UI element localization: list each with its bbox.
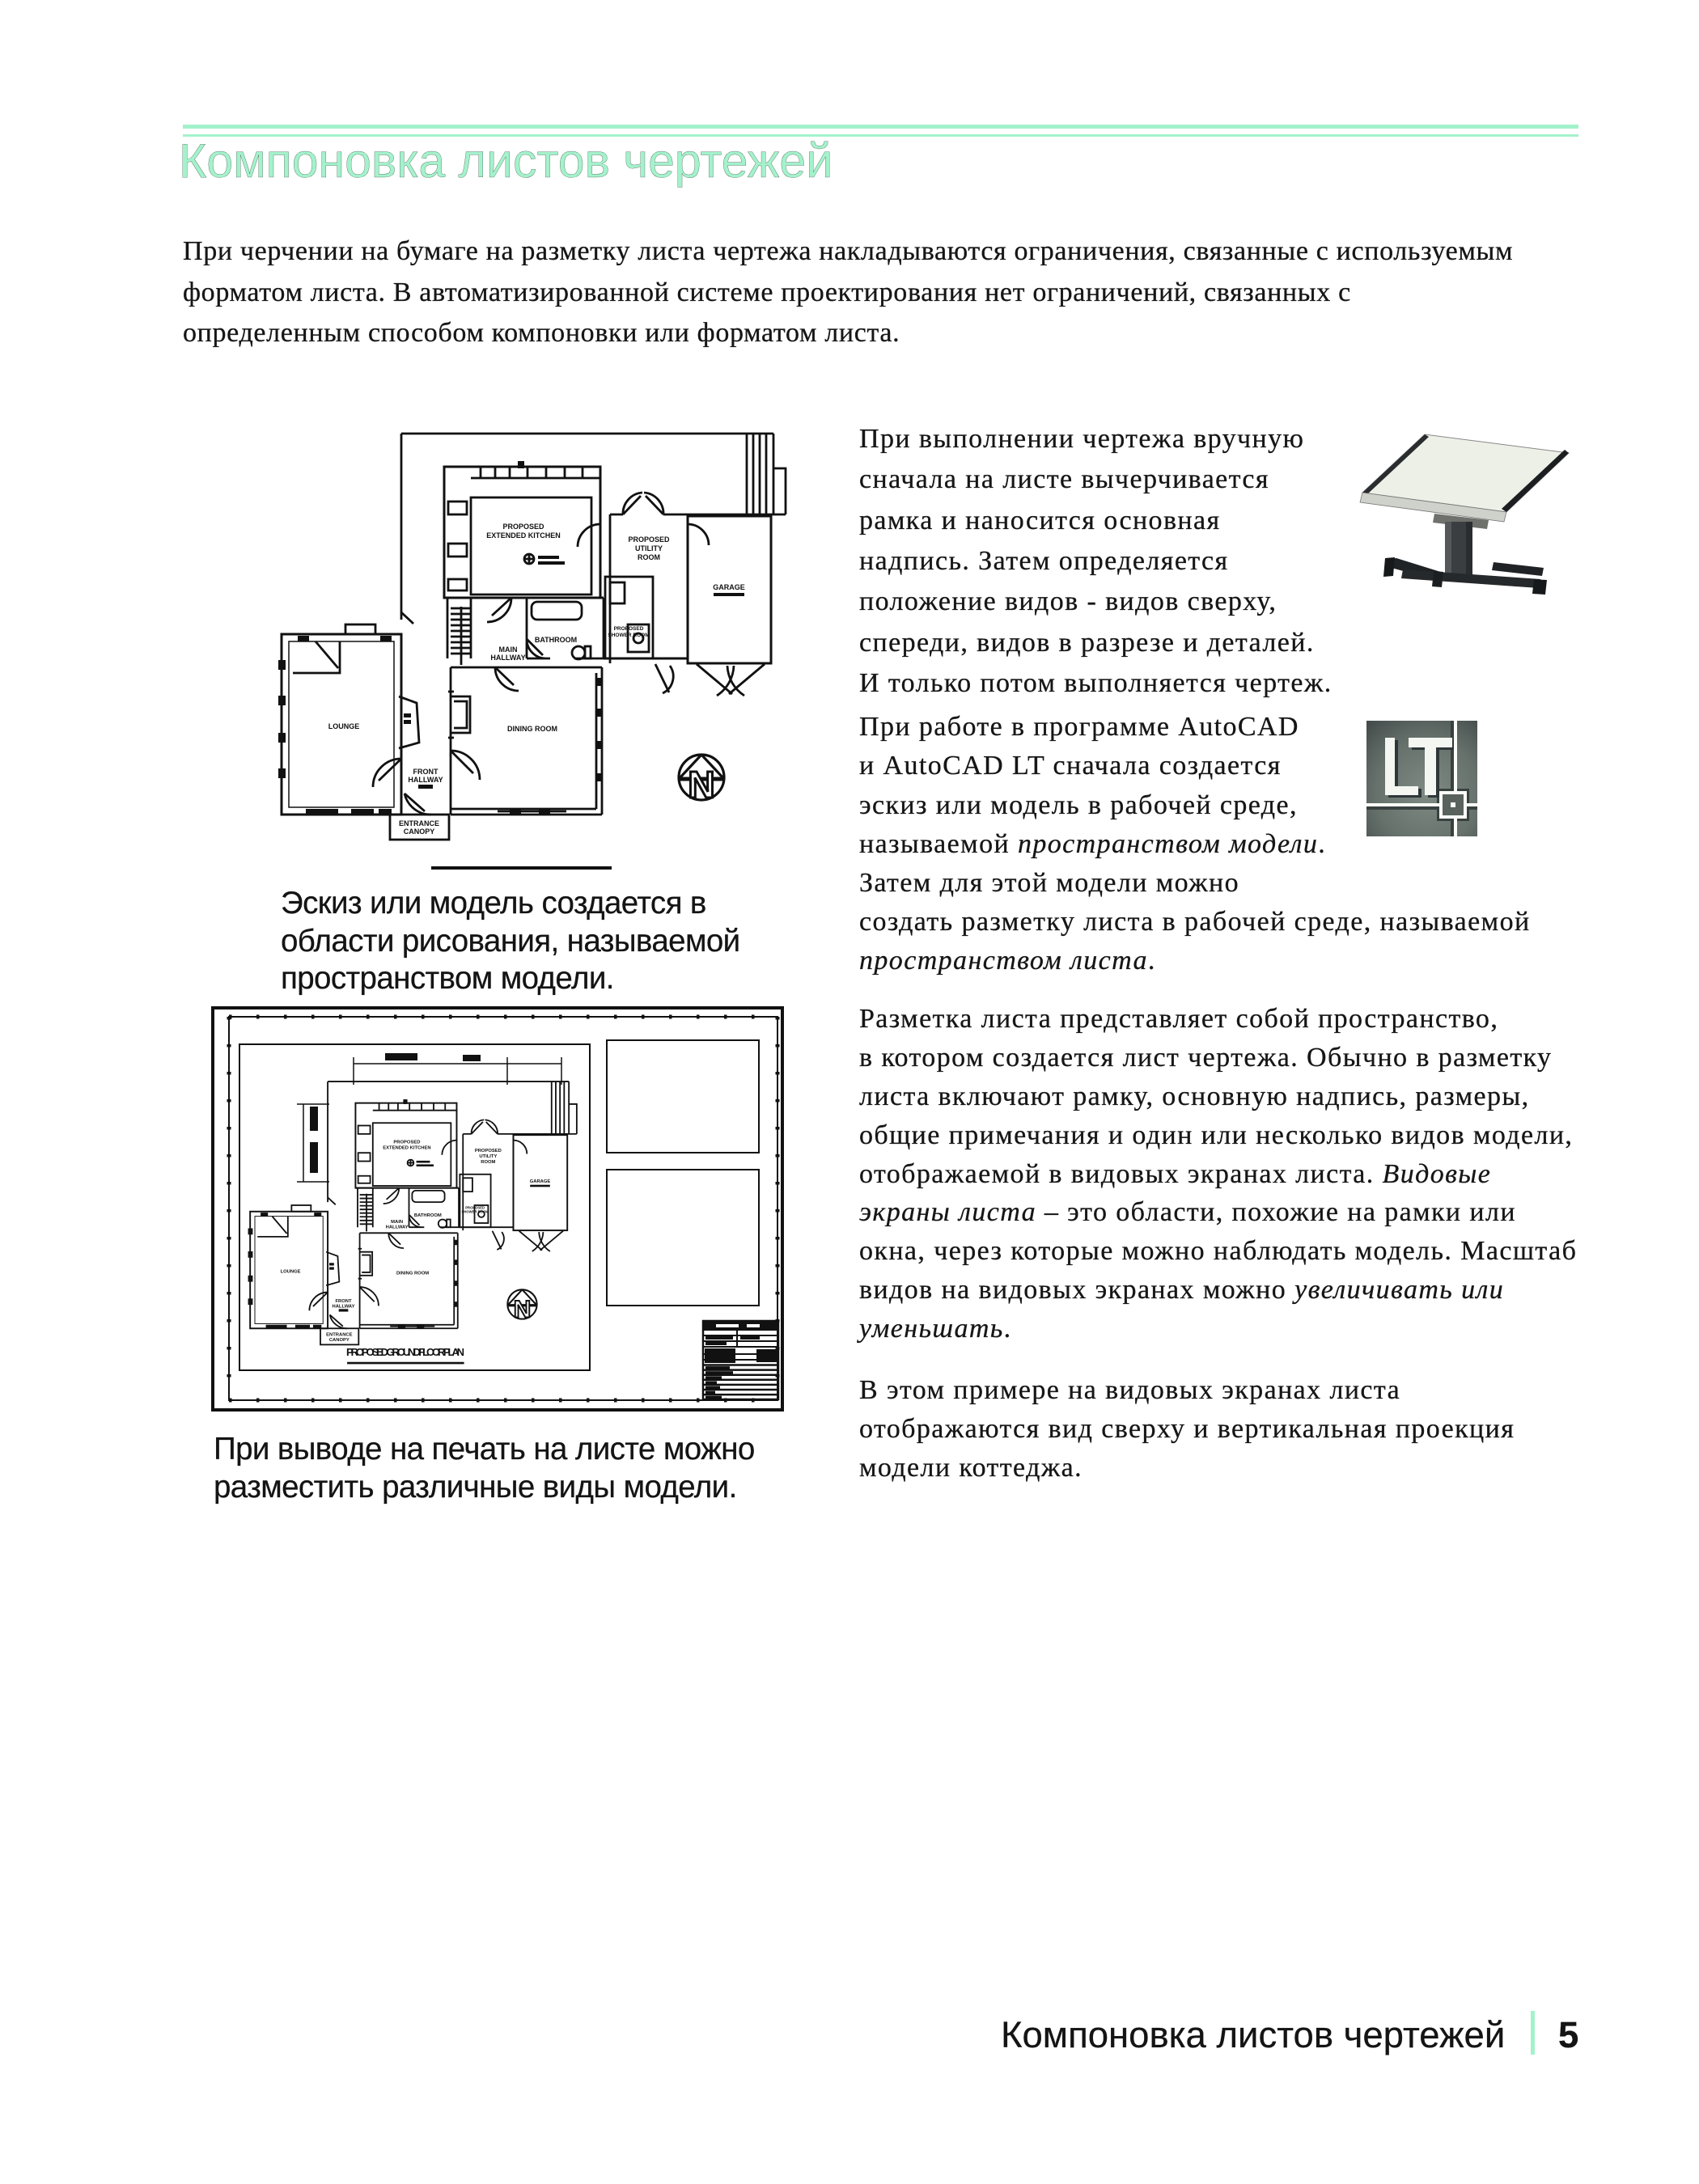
svg-text:BATHROOM: BATHROOM <box>535 636 577 644</box>
svg-text:CANOPY: CANOPY <box>404 827 435 836</box>
svg-text:EXTENDED KITCHEN: EXTENDED KITCHEN <box>486 531 561 540</box>
svg-text:LOUNGE: LOUNGE <box>328 722 360 730</box>
svg-text:PROPOSED: PROPOSED <box>628 535 670 544</box>
svg-text:ENTRANCE: ENTRANCE <box>399 819 439 827</box>
svg-text:N: N <box>688 764 714 806</box>
svg-text:PROPOSED: PROPOSED <box>502 523 544 531</box>
svg-text:PROPOSED: PROPOSED <box>614 626 644 632</box>
svg-text:UTILITY: UTILITY <box>635 544 663 552</box>
svg-text:FRONT: FRONT <box>413 768 439 776</box>
svg-text:DINING ROOM: DINING ROOM <box>507 725 557 733</box>
svg-text:ROOM: ROOM <box>638 553 660 561</box>
svg-text:GARAGE: GARAGE <box>713 583 745 591</box>
svg-text:HALLWAY: HALLWAY <box>490 654 525 662</box>
svg-text:MAIN: MAIN <box>499 645 518 654</box>
svg-text:SHOWER ROOM: SHOWER ROOM <box>608 633 649 638</box>
svg-text:HALLWAY: HALLWAY <box>408 776 443 784</box>
svg-text:PROPOSED GROUND FLOOR PLAN: PROPOSED GROUND FLOOR PLAN <box>346 1346 464 1358</box>
